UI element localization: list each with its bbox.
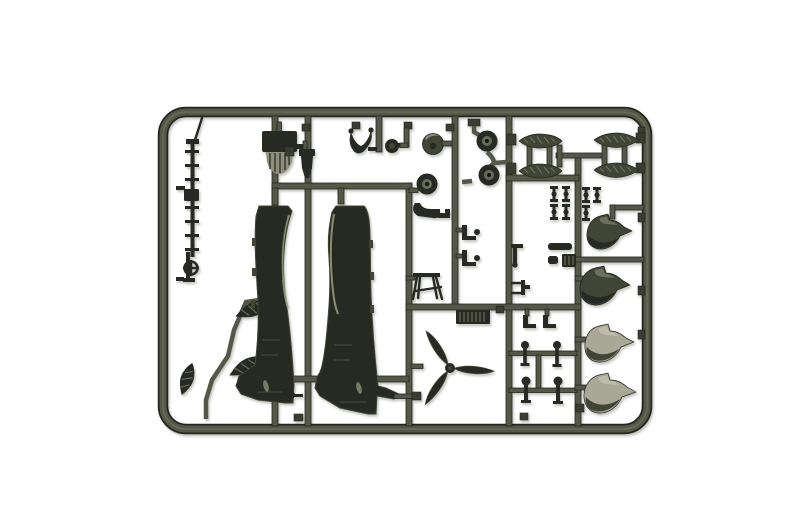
rail-tank-arm (556, 153, 602, 158)
rail-h2 (406, 304, 581, 310)
drop-tank-half-3 (594, 133, 639, 148)
drop-tank-pair-1 (519, 134, 562, 178)
wheel-half-b (477, 131, 498, 152)
wheel-half-a (409, 174, 438, 195)
photo-stage: Injection-molded plastic model kit sprue… (0, 0, 800, 530)
boarding-ladder (176, 118, 202, 257)
rail-strut-b (509, 388, 577, 393)
ribbed-access-panel (456, 310, 490, 324)
axle-part (550, 186, 558, 202)
step-bracket-1 (456, 225, 480, 240)
spinner-dome (423, 134, 453, 155)
axle-part (550, 204, 558, 220)
fork-bracket-1 (511, 244, 523, 268)
wheel-spat-half-2 (580, 266, 630, 305)
drop-tank-half-1 (519, 134, 562, 148)
ladder-gate-stub (195, 118, 202, 140)
wheel-spat-half-4 (584, 373, 636, 413)
axle-part (593, 187, 601, 203)
wheel-half-c (479, 165, 500, 186)
gunsight-ring (176, 252, 198, 282)
spat1-bracket-v (610, 205, 615, 219)
engine-cylinder-cluster (548, 243, 576, 267)
axle-part (582, 205, 590, 221)
rail-strut-mid (536, 355, 541, 389)
oil-cooler-grille (262, 122, 304, 174)
step-bracket-2 (456, 250, 480, 266)
fork-bracket-2 (512, 280, 530, 295)
small-disc-part (385, 128, 409, 153)
drop-tank-half-4 (594, 163, 639, 178)
axle-part (562, 204, 570, 220)
rail-v5 (452, 116, 458, 309)
three-blade-propeller (411, 329, 494, 406)
control-yoke-part (348, 127, 377, 153)
float-half-3 (176, 361, 199, 397)
rail-h5 (575, 257, 644, 262)
wheel-spat-half-1 (587, 214, 632, 249)
rail-strut-a (509, 351, 577, 356)
axle-part (562, 186, 570, 202)
sprue-photo: Injection-molded plastic model kit sprue… (0, 0, 800, 530)
rail-v3-stub (376, 116, 382, 152)
angle-bracket-pair (523, 309, 556, 328)
wheel-spat-half-3 (585, 324, 634, 362)
axle-part (582, 187, 590, 203)
curved-bracket-part (413, 203, 450, 218)
